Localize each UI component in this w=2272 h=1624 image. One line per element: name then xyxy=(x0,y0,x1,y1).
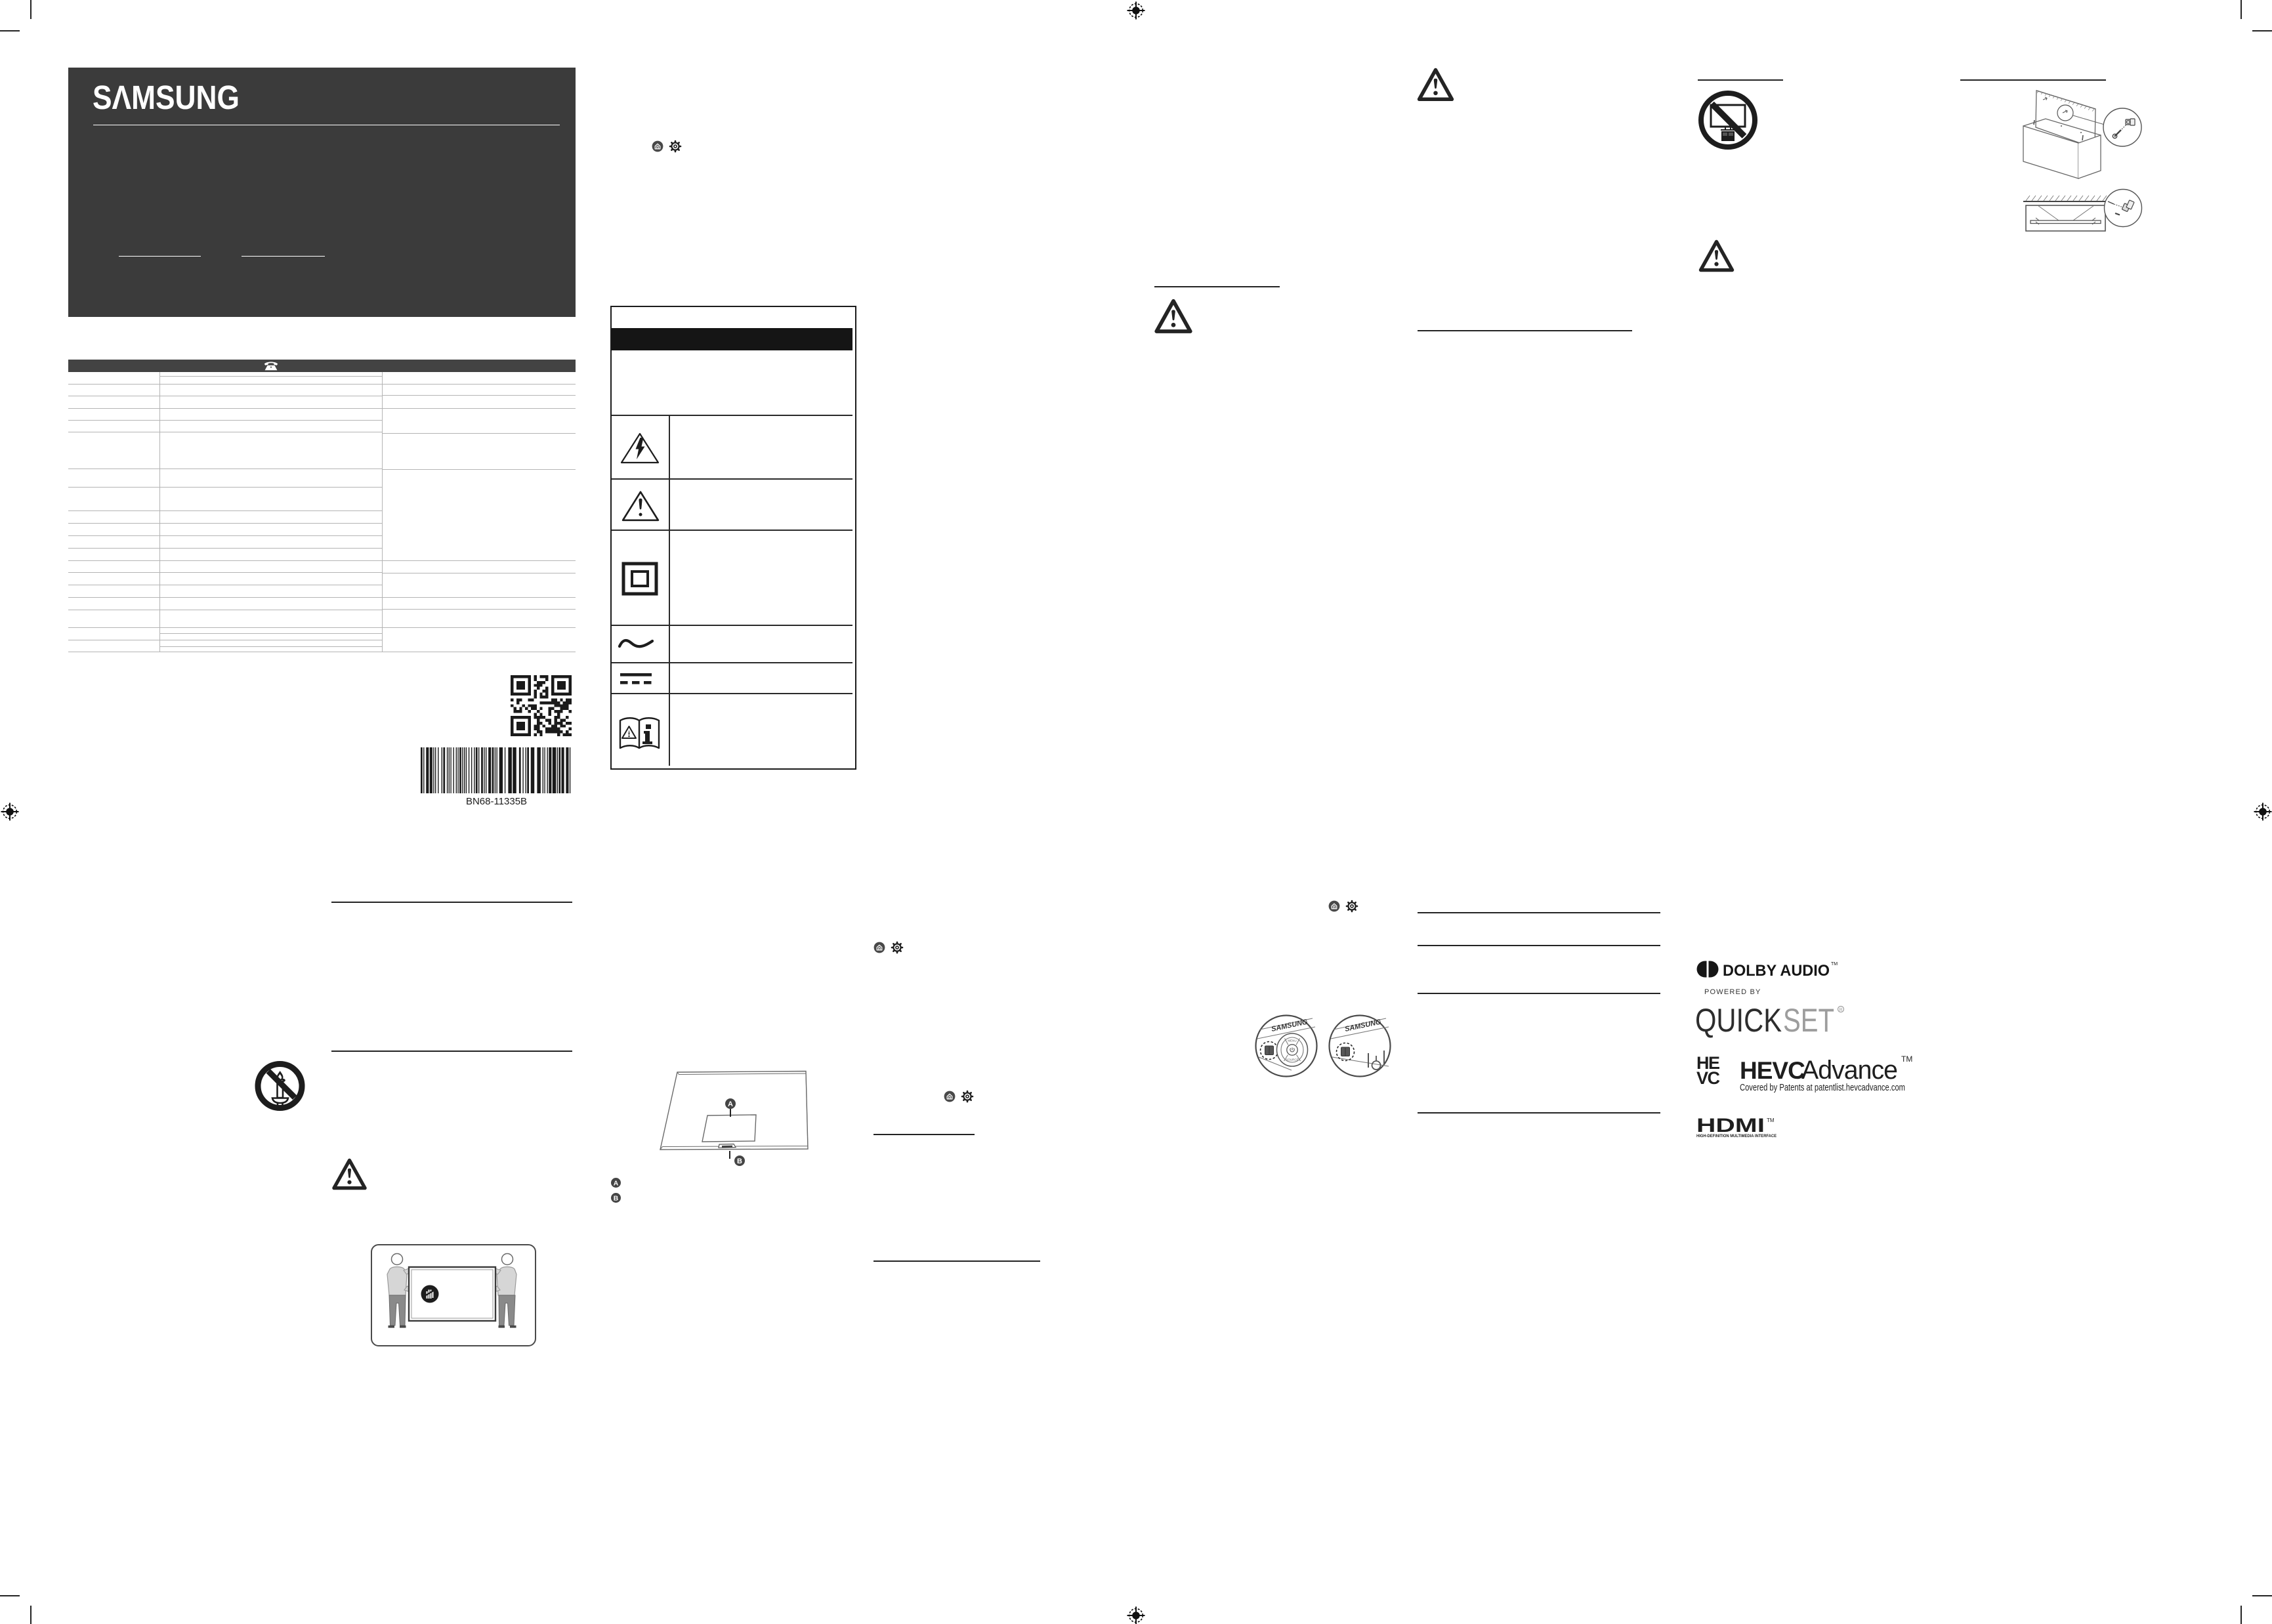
svg-text:Advance: Advance xyxy=(1801,1056,1897,1085)
svg-text:Covered by Patents at patentli: Covered by Patents at patentlist.hevcadv… xyxy=(1740,1083,1905,1093)
svg-text:TM: TM xyxy=(1767,1117,1775,1123)
svg-text:A: A xyxy=(728,1100,733,1108)
svg-text:HIGH-DEFINITION MULTIMEDIA INT: HIGH-DEFINITION MULTIMEDIA INTERFACE xyxy=(1696,1134,1777,1138)
svg-text:B: B xyxy=(614,1195,618,1202)
svg-text:SΛMSUNG: SΛMSUNG xyxy=(93,82,240,112)
svg-text:VC: VC xyxy=(1696,1068,1720,1088)
svg-text:A: A xyxy=(614,1180,619,1187)
svg-text:HEVC: HEVC xyxy=(1740,1057,1805,1084)
svg-text:SOURCE: SOURCE xyxy=(1286,1058,1298,1062)
svg-text:DOLBY AUDIO: DOLBY AUDIO xyxy=(1723,962,1830,978)
svg-text:MENU: MENU xyxy=(1288,1039,1296,1043)
svg-text:TM: TM xyxy=(1901,1054,1912,1064)
svg-text:SET: SET xyxy=(1783,1004,1834,1038)
svg-text:B: B xyxy=(737,1157,742,1165)
svg-text:QUICK: QUICK xyxy=(1695,1004,1782,1038)
svg-text:R: R xyxy=(1839,1008,1842,1012)
svg-text:TM: TM xyxy=(1831,962,1838,967)
